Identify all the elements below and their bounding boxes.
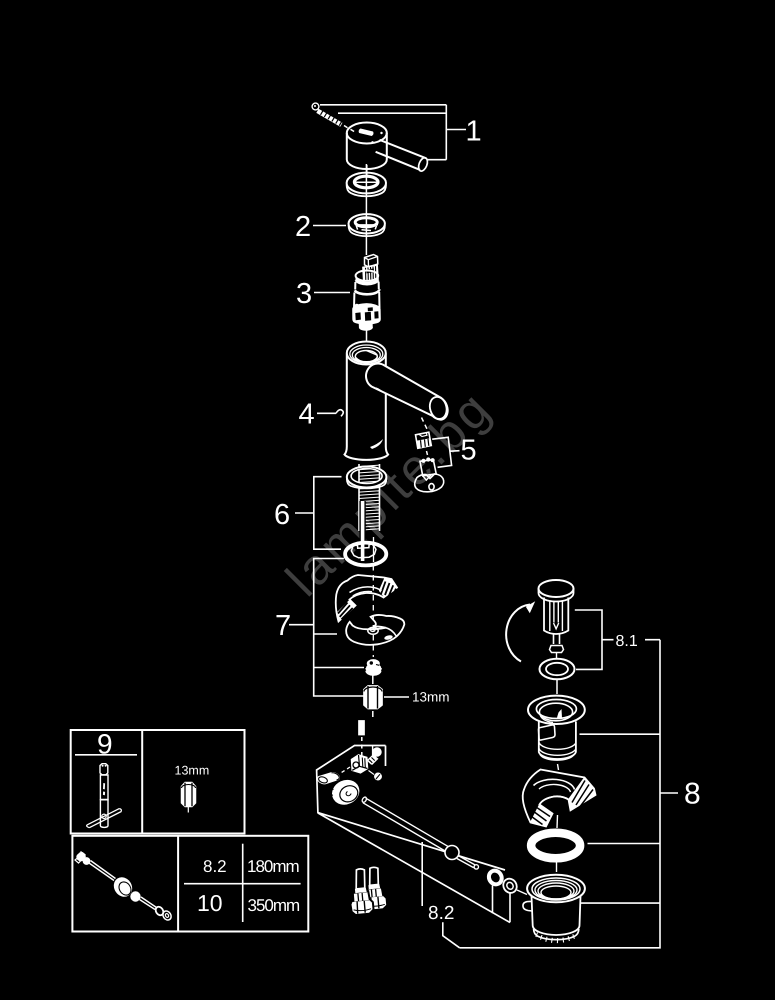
svg-text:2: 2 [295,211,311,243]
svg-text:7: 7 [275,610,291,642]
svg-text:350mm: 350mm [248,896,301,915]
svg-text:13mm: 13mm [412,690,450,705]
svg-text:180mm: 180mm [247,857,300,876]
svg-text:4: 4 [299,399,315,431]
svg-text:6: 6 [274,499,290,531]
svg-text:5: 5 [461,435,477,467]
svg-text:13mm: 13mm [175,764,210,778]
svg-text:8.1: 8.1 [616,633,638,650]
svg-text:8: 8 [684,778,701,811]
svg-text:3: 3 [296,278,312,310]
svg-text:8.2: 8.2 [203,857,227,876]
svg-text:10: 10 [197,890,223,916]
svg-text:8.2: 8.2 [428,903,454,924]
svg-text:1: 1 [466,116,482,148]
